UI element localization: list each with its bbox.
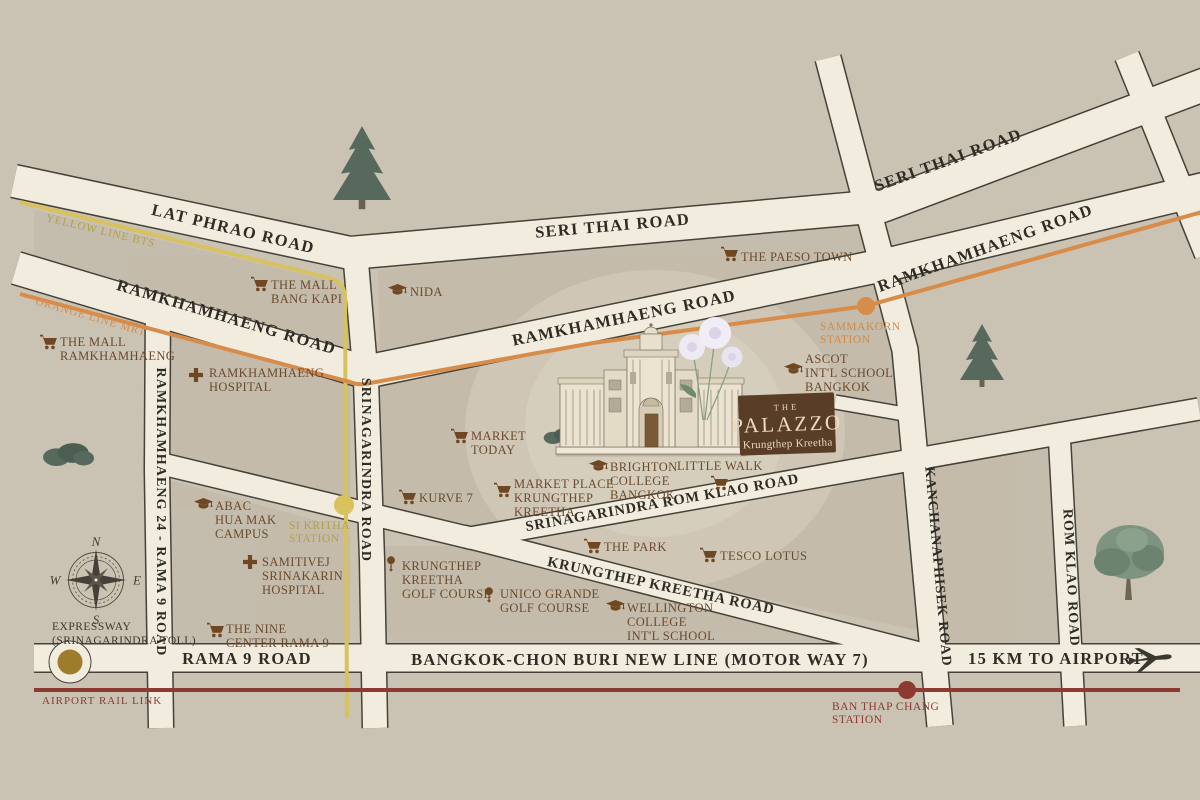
ban-thap-chang-station-marker bbox=[898, 681, 916, 699]
road-label-rama9: RAMA 9 ROAD bbox=[182, 649, 312, 668]
sammakorn-station-marker bbox=[857, 297, 875, 315]
location-map: THE PALAZZO Krungthep Kreetha LAT PHRAO … bbox=[0, 0, 1200, 800]
svg-text:TESCO LOTUS: TESCO LOTUS bbox=[720, 549, 807, 563]
compass-north: N bbox=[91, 534, 102, 549]
svg-text:LITTLE WALK: LITTLE WALK bbox=[677, 459, 763, 473]
si-kritha-station-marker bbox=[334, 495, 354, 515]
palazzo-badge: THE PALAZZO Krungthep Kreetha bbox=[730, 392, 843, 456]
svg-text:KURVE 7: KURVE 7 bbox=[419, 491, 473, 505]
road-label-motorway: BANGKOK-CHON BURI NEW LINE (MOTOR WAY 7) bbox=[411, 650, 869, 669]
svg-text:THE PARK: THE PARK bbox=[604, 540, 667, 554]
expressway-toll-marker bbox=[49, 641, 91, 683]
poi-unico-grande-golf: UNICO GRANDEGOLF COURSE bbox=[485, 587, 599, 615]
svg-text:NIDA: NIDA bbox=[410, 285, 443, 299]
svg-text:UNICO GRANDEGOLF COURSE: UNICO GRANDEGOLF COURSE bbox=[500, 587, 600, 615]
badge-name: PALAZZO bbox=[731, 410, 843, 438]
road-label-srinagarindra: SRINAGARINDRA ROAD bbox=[358, 378, 373, 562]
svg-text:BRIGHTONCOLLEGEBANGKOK: BRIGHTONCOLLEGEBANGKOK bbox=[610, 460, 678, 502]
svg-text:THE PAESO TOWN: THE PAESO TOWN bbox=[741, 250, 853, 264]
airport-rail-link-label: AIRPORT RAIL LINK bbox=[42, 695, 162, 707]
road-label-ramkhamhaeng-24: RAMKHAMHAENG 24 - RAMA 9 ROAD bbox=[153, 368, 168, 657]
poi-the-paeso-town: THE PAESO TOWN bbox=[721, 247, 853, 264]
airport-distance-label: 15 KM TO AIRPORT bbox=[968, 649, 1144, 668]
map-canvas: THE PALAZZO Krungthep Kreetha LAT PHRAO … bbox=[0, 0, 1200, 800]
compass-west: W bbox=[50, 573, 62, 588]
svg-text:THE MALLBANG KAPI: THE MALLBANG KAPI bbox=[271, 278, 342, 306]
compass-south: S bbox=[93, 612, 100, 627]
compass-east: E bbox=[132, 573, 141, 588]
